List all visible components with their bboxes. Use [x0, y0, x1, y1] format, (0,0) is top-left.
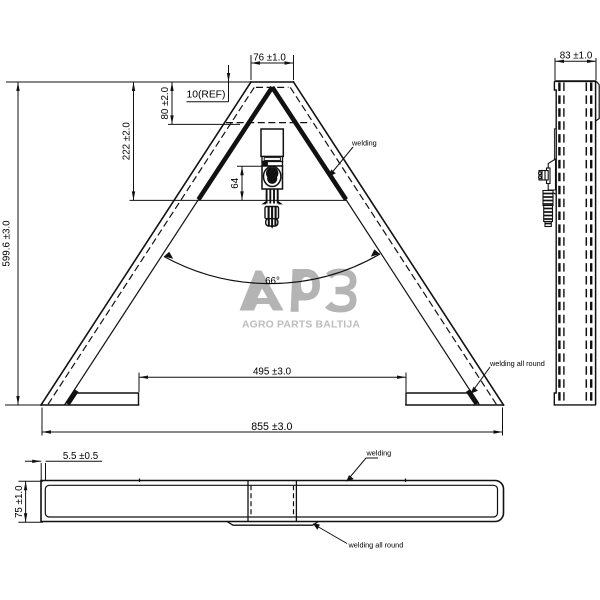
svg-text:76 ±1.0: 76 ±1.0 [253, 53, 286, 64]
svg-text:75 ±1.0: 75 ±1.0 [14, 485, 25, 518]
svg-text:5.5 ±0.5: 5.5 ±0.5 [63, 451, 99, 462]
svg-text:495 ±3.0: 495 ±3.0 [253, 367, 292, 378]
svg-text:welding: welding [351, 138, 377, 147]
svg-text:welding all round: welding all round [348, 540, 404, 549]
svg-text:80 ±2.0: 80 ±2.0 [160, 86, 171, 119]
svg-text:welding: welding [366, 449, 392, 458]
svg-text:AGRO PARTS BALTIJA: AGRO PARTS BALTIJA [242, 320, 360, 331]
svg-text:855 ±3.0: 855 ±3.0 [251, 421, 292, 433]
svg-text:222 ±2.0: 222 ±2.0 [122, 122, 133, 161]
svg-text:64: 64 [230, 177, 241, 188]
svg-text:welding all round: welding all round [489, 359, 545, 368]
svg-text:83 ±1.0: 83 ±1.0 [560, 50, 593, 61]
svg-text:599.6 ±3.0: 599.6 ±3.0 [2, 220, 13, 267]
svg-text:10(REF): 10(REF) [187, 89, 226, 100]
svg-text:66°: 66° [265, 276, 280, 287]
